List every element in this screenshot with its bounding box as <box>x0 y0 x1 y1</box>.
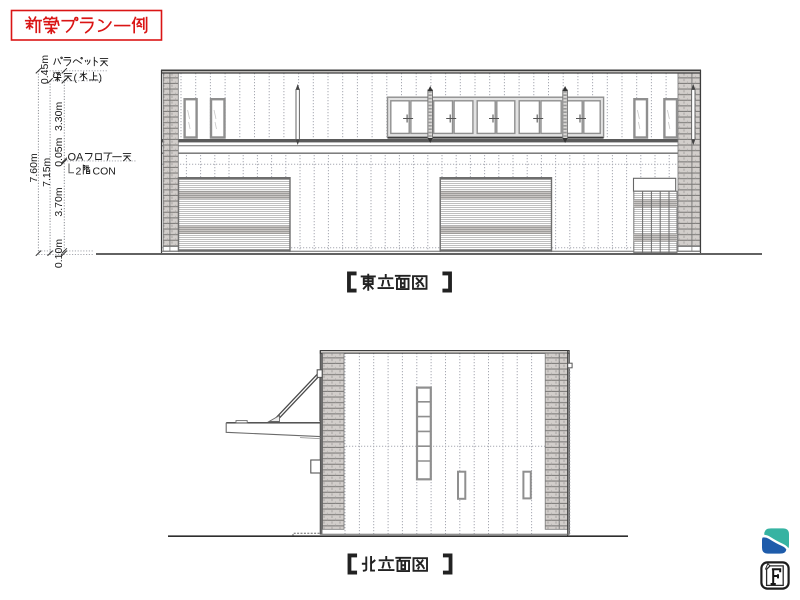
svg-text:OA: OA <box>68 152 85 164</box>
svg-text:3.70m: 3.70m <box>53 187 65 216</box>
svg-text:0.05m: 0.05m <box>53 137 65 166</box>
svg-text:(: ( <box>74 72 78 84</box>
svg-text:0.10m: 0.10m <box>53 239 65 268</box>
svg-text:CON: CON <box>93 166 116 178</box>
svg-text:7.15m: 7.15m <box>41 157 53 186</box>
svg-text:0.45m: 0.45m <box>39 55 51 84</box>
svg-text:7.60m: 7.60m <box>28 153 40 182</box>
svg-text:2: 2 <box>76 166 82 178</box>
svg-text:3.30m: 3.30m <box>53 102 65 131</box>
svg-text:): ) <box>99 72 103 84</box>
